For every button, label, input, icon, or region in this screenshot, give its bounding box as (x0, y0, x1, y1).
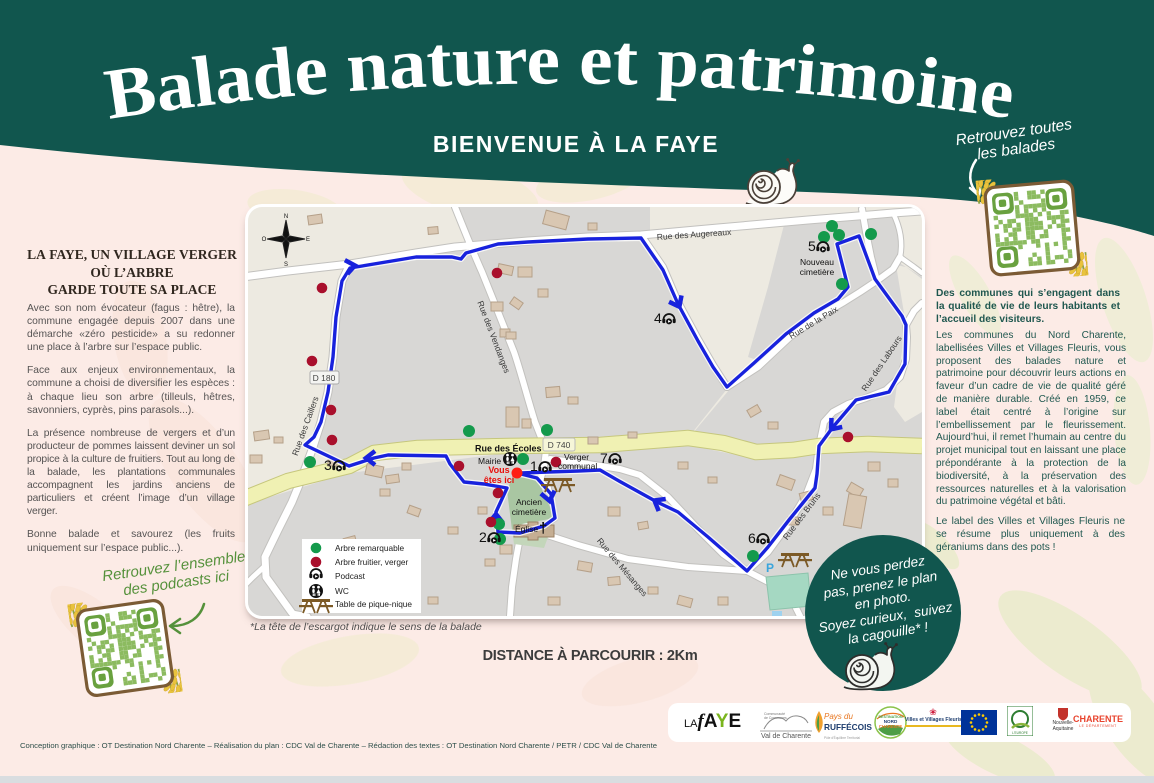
svg-text:êtes ici: êtes ici (484, 475, 515, 485)
svg-text:N: N (284, 214, 288, 220)
svg-text:Ancien: Ancien (516, 497, 542, 507)
svg-text:Val de Charente: Val de Charente (761, 733, 811, 739)
svg-text:Église: Église (515, 524, 538, 534)
svg-text:1: 1 (530, 458, 538, 474)
svg-text:Nouveau: Nouveau (800, 257, 834, 267)
svg-text:7: 7 (600, 450, 608, 466)
svg-text:2: 2 (479, 529, 487, 545)
svg-text:Vous: Vous (488, 465, 509, 475)
svg-text:L'EUROPE: L'EUROPE (1012, 731, 1028, 735)
svg-text:D 740: D 740 (548, 440, 571, 450)
svg-text:E: E (306, 237, 310, 243)
svg-text:D 180: D 180 (313, 373, 336, 383)
svg-text:BIENVENUE À LA FAYE: BIENVENUE À LA FAYE (433, 130, 719, 157)
svg-text:Table de pique-nique: Table de pique-nique (335, 599, 412, 609)
svg-text:4: 4 (654, 310, 662, 326)
svg-text:O: O (262, 237, 267, 243)
svg-text:Arbre fruitier, verger: Arbre fruitier, verger (335, 557, 409, 567)
svg-text:cimetière: cimetière (800, 267, 835, 277)
svg-text:Podcast: Podcast (335, 571, 366, 581)
svg-text:S: S (284, 262, 288, 268)
svg-text:6: 6 (748, 530, 756, 546)
svg-text:Arbre remarquable: Arbre remarquable (335, 543, 405, 553)
svg-text:5: 5 (808, 238, 816, 254)
svg-text:de Communes: de Communes (764, 716, 787, 720)
svg-text:WC: WC (335, 586, 349, 596)
svg-text:P: P (766, 561, 774, 575)
svg-text:Rue des Écoles: Rue des Écoles (475, 444, 542, 454)
svg-text:3: 3 (324, 457, 332, 473)
svg-text:†: † (539, 520, 547, 537)
svg-text:cimetière: cimetière (512, 507, 547, 517)
svg-text:CHARENTE: CHARENTE (879, 724, 902, 729)
svg-text:communal: communal (558, 461, 597, 471)
